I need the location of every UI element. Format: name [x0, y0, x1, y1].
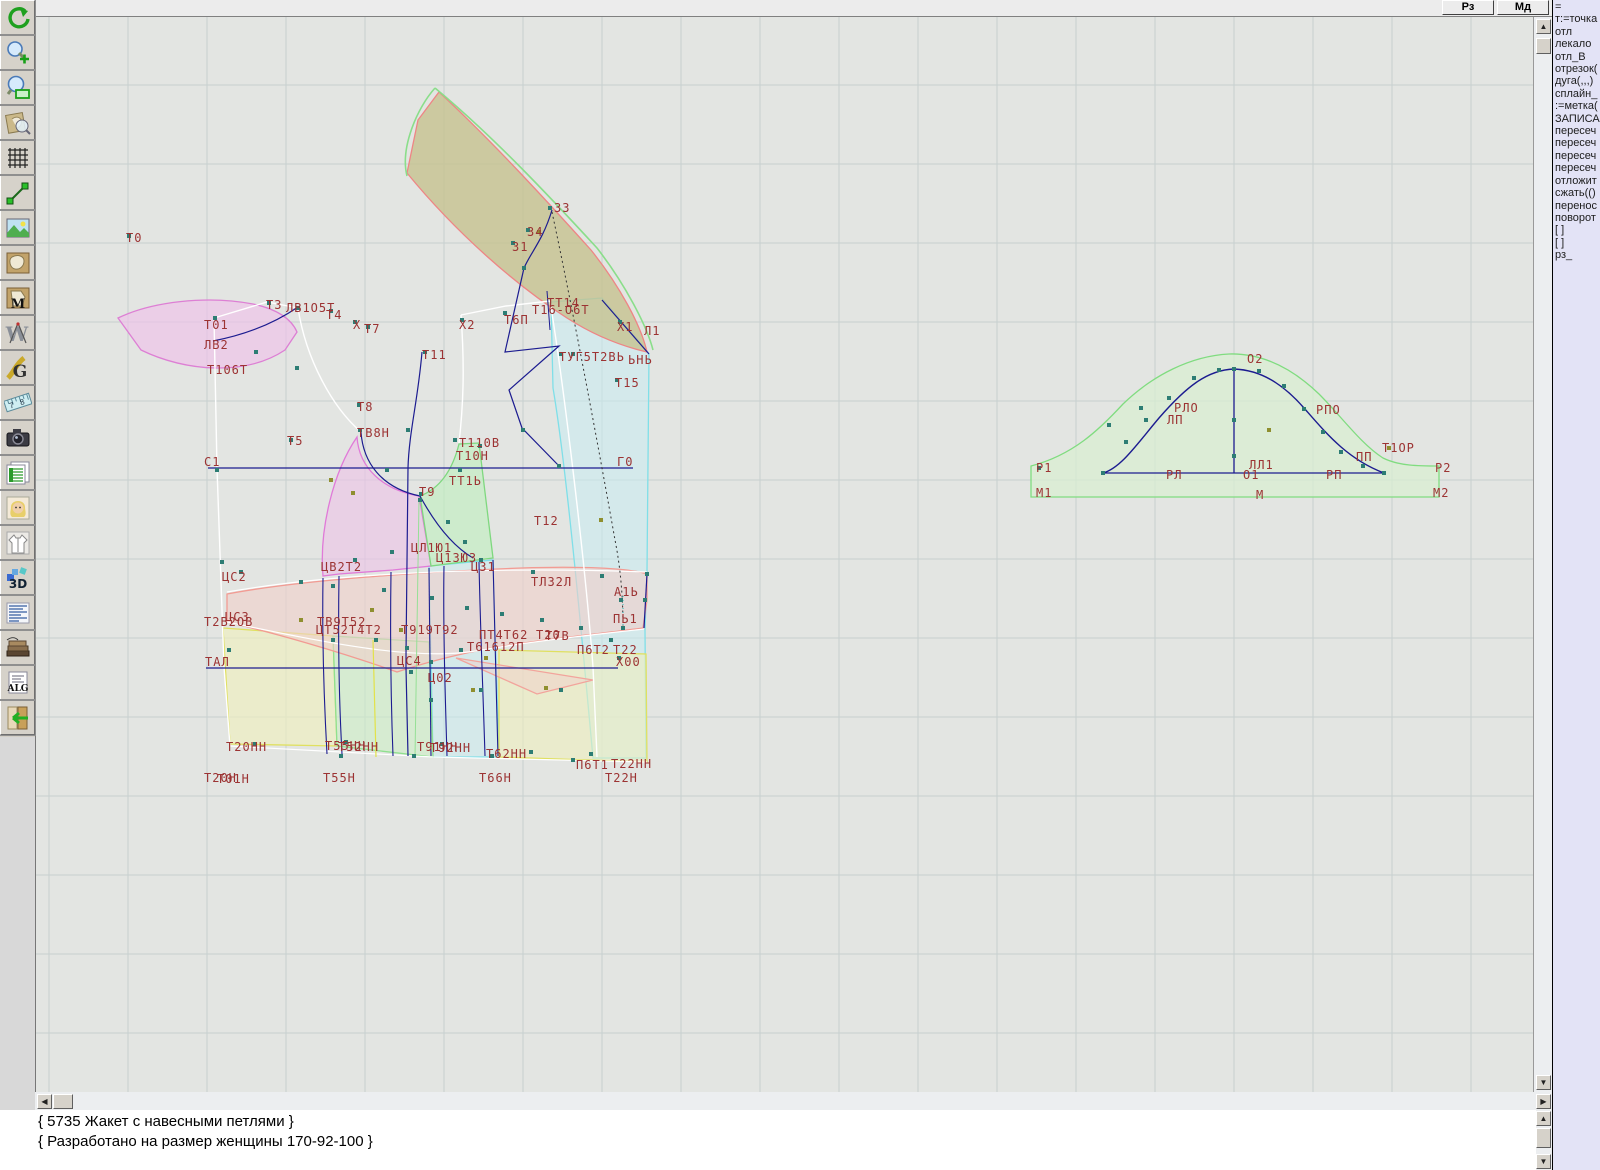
operator-list-item[interactable]: отложит: [1555, 175, 1600, 187]
point-label-РПО[interactable]: РПО: [1316, 403, 1341, 417]
olive-point-marker[interactable]: [299, 618, 303, 622]
operator-list-item[interactable]: перенос: [1555, 200, 1600, 212]
olive-point-marker[interactable]: [599, 518, 603, 522]
teal-point-marker[interactable]: [1361, 464, 1365, 468]
point-label-33[interactable]: 33: [554, 201, 570, 215]
toolbar-spacer: [0, 737, 35, 1170]
teal-point-marker[interactable]: [1257, 369, 1261, 373]
point-label-РП[interactable]: РП: [1326, 468, 1342, 482]
point-label-ЛВ2[interactable]: ЛВ2: [204, 338, 229, 352]
teal-point-marker[interactable]: [339, 754, 343, 758]
compass-icon: W: [4, 319, 32, 347]
point-label-Х1[interactable]: Х1: [617, 320, 633, 334]
construction-line[interactable]: [298, 308, 361, 432]
teal-point-marker[interactable]: [390, 550, 394, 554]
operator-list-item[interactable]: пересеч: [1555, 125, 1600, 137]
teal-point-marker[interactable]: [220, 560, 224, 564]
point-label-Р1[interactable]: Р1: [1036, 461, 1052, 475]
point-label-Т6П[interactable]: Т6П: [504, 313, 529, 327]
teal-point-marker[interactable]: [579, 626, 583, 630]
teal-point-marker[interactable]: [500, 612, 504, 616]
toolbar-button-portrait[interactable]: [0, 490, 35, 525]
drawing-canvas[interactable]: Т0Т01ЛВ2Т106ТТ3ЛВ1О5ТТ4ХТ7Т5Т11Х2Т6ПТТ14…: [35, 17, 1533, 1092]
program-scroll-thumb[interactable]: [1536, 1128, 1551, 1148]
point-label-Т1ОР[interactable]: Т1ОР: [1382, 441, 1415, 455]
teal-point-marker[interactable]: [557, 464, 561, 468]
operator-list-item[interactable]: [ ]: [1555, 224, 1600, 236]
toolbar-button-pattern-m[interactable]: M: [0, 280, 35, 315]
teal-point-marker[interactable]: [1139, 406, 1143, 410]
olive-point-marker[interactable]: [351, 491, 355, 495]
teal-point-marker[interactable]: [331, 584, 335, 588]
teal-point-marker[interactable]: [385, 468, 389, 472]
teal-point-marker[interactable]: [1321, 430, 1325, 434]
operator-list-panel[interactable]: =т:=точкаотллекалоотл_Вотрезок(дуга(,,,)…: [1552, 0, 1600, 1170]
toolbar-button-undo[interactable]: [0, 0, 35, 35]
operator-list-item[interactable]: рз_: [1555, 249, 1600, 261]
portrait-icon: [4, 494, 32, 522]
olive-point-marker[interactable]: [1267, 428, 1271, 432]
program-line-2[interactable]: { Разработано на размер женщины 170-92-1…: [38, 1132, 1536, 1152]
point-label-ТЛ32Л[interactable]: ТЛ32Л: [531, 575, 572, 589]
point-label-Х00[interactable]: Х00: [616, 655, 641, 669]
olive-point-marker[interactable]: [484, 656, 488, 660]
olive-point-marker[interactable]: [329, 478, 333, 482]
point-label-М1[interactable]: М1: [1036, 486, 1052, 500]
top-strip: Рз Мд: [35, 0, 1552, 17]
operator-list-item[interactable]: пересеч: [1555, 150, 1600, 162]
toolbar-button-3d[interactable]: 3D: [0, 560, 35, 595]
point-label-Т5[interactable]: Т5: [287, 434, 303, 448]
scroll-down-icon[interactable]: ▼: [1536, 1075, 1551, 1090]
toolbar-button-table[interactable]: [0, 455, 35, 490]
point-label-ЛП[interactable]: ЛП: [1167, 413, 1183, 427]
teal-point-marker[interactable]: [382, 588, 386, 592]
teal-point-marker[interactable]: [589, 752, 593, 756]
operator-list-item[interactable]: пересеч: [1555, 162, 1600, 174]
pattern-cad-window: { "topbar": { "buttons": [ { "label": "Р…: [0, 0, 1600, 1170]
construction-line[interactable]: [459, 315, 463, 443]
toolbar-button-camera[interactable]: [0, 420, 35, 455]
teal-point-marker[interactable]: [559, 688, 563, 692]
operator-list-item[interactable]: дуга(,,,): [1555, 75, 1600, 87]
teal-point-marker[interactable]: [479, 688, 483, 692]
operator-list-item[interactable]: [ ]: [1555, 237, 1600, 249]
canvas-horizontal-scrollbar[interactable]: ◀ ▶: [35, 1092, 1552, 1110]
operator-list-item[interactable]: отрезок(: [1555, 63, 1600, 75]
grid-lines: [36, 17, 1533, 1092]
teal-point-marker[interactable]: [531, 570, 535, 574]
books-icon: [4, 634, 32, 662]
teal-point-marker[interactable]: [1232, 454, 1236, 458]
text-block-icon: [4, 599, 32, 627]
teal-point-marker[interactable]: [540, 618, 544, 622]
teal-point-marker[interactable]: [643, 598, 647, 602]
point-label-С1[interactable]: С1: [204, 455, 220, 469]
point-label-Т16-О6Т[interactable]: Т16-О6Т: [532, 303, 590, 317]
teal-point-marker[interactable]: [1232, 367, 1236, 371]
piece-sleeve-cap-green[interactable]: [1031, 354, 1439, 497]
toolbar-button-zoom-in[interactable]: [0, 35, 35, 70]
teal-point-marker[interactable]: [1339, 450, 1343, 454]
point-label-ЦТ52Т4Т2[interactable]: ЦТ52Т4Т2: [316, 623, 382, 637]
point-label-Т9[interactable]: Т9: [419, 485, 435, 499]
teal-point-marker[interactable]: [227, 648, 231, 652]
teal-point-marker[interactable]: [621, 626, 625, 630]
teal-point-marker[interactable]: [1107, 423, 1111, 427]
teal-point-marker[interactable]: [429, 698, 433, 702]
teal-point-marker[interactable]: [1232, 418, 1236, 422]
point-label-Х[interactable]: Х: [353, 318, 361, 332]
teal-point-marker[interactable]: [254, 350, 258, 354]
point-label-Т52НН[interactable]: Т52НН: [338, 740, 379, 754]
point-label-Т4[interactable]: Т4: [326, 308, 342, 322]
teal-point-marker[interactable]: [446, 520, 450, 524]
point-label-ЦВ2Т2[interactable]: ЦВ2Т2: [321, 560, 362, 574]
toolbar-button-pattern[interactable]: [0, 245, 35, 280]
point-label-ТТ1Ь[interactable]: ТТ1Ь: [449, 474, 482, 488]
undo-icon: [4, 4, 32, 32]
point-label-Т01[interactable]: Т01: [204, 318, 229, 332]
svg-text:G: G: [12, 362, 27, 382]
program-line-1[interactable]: { 5735 Жакет с навесными петлями }: [38, 1112, 1536, 1132]
teal-point-marker[interactable]: [406, 428, 410, 432]
grid-icon: [4, 144, 32, 172]
scroll-down-icon[interactable]: ▼: [1536, 1154, 1551, 1169]
point-label-Т2В2ОВ[interactable]: Т2В2ОВ: [204, 615, 253, 629]
operator-list-item[interactable]: т:=точка: [1555, 13, 1600, 25]
toolbar-button-garment[interactable]: [0, 525, 35, 560]
point-label-Т66Н[interactable]: Т66Н: [479, 771, 512, 785]
camera-icon: [4, 424, 32, 452]
point-label-О1[interactable]: О1: [1243, 468, 1259, 482]
teal-point-marker[interactable]: [430, 596, 434, 600]
toolbar-button-ruler[interactable]: 87: [0, 385, 35, 420]
point-label-О2[interactable]: О2: [1247, 352, 1263, 366]
toolbar-button-segment[interactable]: [0, 175, 35, 210]
point-label-Т62НН[interactable]: Т62НН: [486, 747, 527, 761]
teal-point-marker[interactable]: [1302, 407, 1306, 411]
teal-point-marker[interactable]: [453, 438, 457, 442]
point-label-РЛ[interactable]: РЛ: [1166, 468, 1182, 482]
toolbar-button-text-block[interactable]: [0, 595, 35, 630]
program-text-area[interactable]: { 5735 Жакет с навесными петлями } { Раз…: [0, 1110, 1536, 1170]
toolbar: MWG873DALG: [0, 0, 35, 737]
point-label-Т106Т[interactable]: Т106Т: [207, 363, 248, 377]
image-icon: [4, 214, 32, 242]
teal-point-marker[interactable]: [529, 750, 533, 754]
teal-point-marker[interactable]: [295, 366, 299, 370]
canvas-vertical-scrollbar[interactable]: ▲ ▼: [1533, 17, 1552, 1092]
point-label-Ц02[interactable]: Ц02: [428, 671, 453, 685]
garment-icon: [4, 529, 32, 557]
point-label-ПП[interactable]: ПП: [1356, 450, 1372, 464]
point-label-Р2[interactable]: Р2: [1435, 461, 1451, 475]
teal-point-marker[interactable]: [459, 648, 463, 652]
pattern-m-icon: M: [4, 284, 32, 312]
alg-icon: ALG: [4, 669, 32, 697]
point-label-31[interactable]: 31: [512, 240, 528, 254]
point-label-Х2[interactable]: Х2: [459, 318, 475, 332]
pattern-drawing: [36, 17, 1533, 1092]
teal-point-marker[interactable]: [412, 754, 416, 758]
toolbar-button-books[interactable]: [0, 630, 35, 665]
operator-list-item[interactable]: поворот: [1555, 212, 1600, 224]
teal-point-marker[interactable]: [609, 638, 613, 642]
operator-list-item[interactable]: сплайн_: [1555, 88, 1600, 100]
md-button[interactable]: Мд: [1497, 0, 1549, 15]
point-label-Т55Н[interactable]: Т55Н: [323, 771, 356, 785]
zoom-in-icon: [4, 39, 32, 67]
point-label-Т61612П[interactable]: Т61612П: [467, 640, 525, 654]
point-label-ТВ8Н[interactable]: ТВ8Н: [357, 426, 390, 440]
point-label-Т92НН[interactable]: Т92НН: [430, 741, 471, 755]
exit-icon: [4, 704, 32, 732]
point-label-Т22НН[interactable]: Т22НН: [611, 757, 652, 771]
point-label-Ц31[interactable]: Ц31: [471, 560, 496, 574]
scroll-left-icon[interactable]: ◀: [37, 1094, 52, 1109]
point-label-Т3[interactable]: Т3: [266, 298, 282, 312]
teal-point-marker[interactable]: [331, 638, 335, 642]
toolbar-button-grid[interactable]: [0, 140, 35, 175]
program-scrollbar[interactable]: ▲ ▼: [1536, 1110, 1552, 1170]
pattern-icon: [4, 249, 32, 277]
ruler-icon: 87: [4, 389, 32, 417]
operator-list-item[interactable]: лекало: [1555, 38, 1600, 50]
teal-point-marker[interactable]: [299, 580, 303, 584]
teal-point-marker[interactable]: [1167, 396, 1171, 400]
teal-point-marker[interactable]: [571, 758, 575, 762]
teal-point-marker[interactable]: [1217, 368, 1221, 372]
scroll-up-icon[interactable]: ▲: [1536, 19, 1551, 34]
teal-point-marker[interactable]: [405, 646, 409, 650]
operator-list-item[interactable]: пересеч: [1555, 137, 1600, 149]
teal-point-marker[interactable]: [465, 606, 469, 610]
point-label-ЬНЬ[interactable]: ЬНЬ: [628, 353, 653, 367]
teal-point-marker[interactable]: [1382, 471, 1386, 475]
toolbar-button-alg[interactable]: ALG: [0, 665, 35, 700]
point-label-Т12[interactable]: Т12: [534, 514, 559, 528]
operator-list-item[interactable]: сжать((): [1555, 187, 1600, 199]
toolbar-button-compass[interactable]: W: [0, 315, 35, 350]
segment-icon: [4, 179, 32, 207]
point-label-П6Т2[interactable]: П6Т2: [577, 643, 610, 657]
point-label-М[interactable]: М: [1256, 488, 1264, 502]
toolbar-button-exit[interactable]: [0, 700, 35, 735]
teal-point-marker[interactable]: [521, 428, 525, 432]
toolbar-button-preview-zoom[interactable]: [0, 105, 35, 140]
olive-point-marker[interactable]: [544, 686, 548, 690]
operator-list-item[interactable]: =: [1555, 1, 1600, 13]
teal-point-marker[interactable]: [429, 660, 433, 664]
point-label-Т7В[interactable]: Т7В: [545, 629, 570, 643]
toolbar-button-g-doc[interactable]: G: [0, 350, 35, 385]
toolbar-button-zoom-window[interactable]: [0, 70, 35, 105]
teal-point-marker[interactable]: [645, 572, 649, 576]
point-label-П6Т1[interactable]: П6Т1: [576, 758, 609, 772]
point-label-Т01Н[interactable]: Т01Н: [217, 772, 250, 786]
point-label-М2[interactable]: М2: [1433, 486, 1449, 500]
teal-point-marker[interactable]: [1144, 418, 1148, 422]
svg-text:3D: 3D: [8, 577, 26, 591]
teal-point-marker[interactable]: [600, 574, 604, 578]
point-label-ТУГ5Т2ВЬ[interactable]: ТУГ5Т2ВЬ: [559, 350, 625, 364]
teal-point-marker[interactable]: [1192, 376, 1196, 380]
3d-icon: 3D: [4, 564, 32, 592]
teal-point-marker[interactable]: [548, 206, 552, 210]
point-label-Т7[interactable]: Т7: [364, 322, 380, 336]
teal-point-marker[interactable]: [522, 266, 526, 270]
point-label-Т919Т92[interactable]: Т919Т92: [401, 623, 459, 637]
point-label-Т0[interactable]: Т0: [126, 231, 142, 245]
point-label-Т22Н[interactable]: Т22Н: [605, 771, 638, 785]
point-label-ЦС2[interactable]: ЦС2: [222, 570, 247, 584]
point-label-Т15[interactable]: Т15: [615, 376, 640, 390]
teal-point-marker[interactable]: [374, 638, 378, 642]
point-label-ПЬ1[interactable]: ПЬ1: [613, 612, 638, 626]
point-label-Т20НН[interactable]: Т20НН: [226, 740, 267, 754]
point-label-Т8[interactable]: Т8: [357, 400, 373, 414]
teal-point-marker[interactable]: [1101, 471, 1105, 475]
horizontal-scroll-thumb[interactable]: [53, 1094, 73, 1109]
teal-point-marker[interactable]: [1124, 440, 1128, 444]
teal-point-marker[interactable]: [1282, 384, 1286, 388]
toolbar-button-image[interactable]: [0, 210, 35, 245]
piece-side-panel-magenta[interactable]: [322, 437, 431, 576]
scroll-right-icon[interactable]: ▶: [1536, 1094, 1551, 1109]
operator-list-item[interactable]: отл: [1555, 26, 1600, 38]
point-label-Г0[interactable]: Г0: [617, 455, 633, 469]
teal-point-marker[interactable]: [463, 540, 467, 544]
g-doc-icon: G: [4, 354, 32, 382]
zoom-window-icon: [4, 74, 32, 102]
point-label-Т110В[interactable]: Т110В: [459, 436, 500, 450]
operator-list-item[interactable]: :=метка(: [1555, 100, 1600, 112]
olive-point-marker[interactable]: [471, 688, 475, 692]
svg-text:M: M: [10, 297, 24, 312]
preview-zoom-icon: [4, 109, 32, 137]
svg-text:ALG: ALG: [6, 684, 28, 694]
olive-point-marker[interactable]: [370, 608, 374, 612]
rz-button[interactable]: Рз: [1442, 0, 1494, 15]
point-label-ЦС4[interactable]: ЦС4: [397, 654, 422, 668]
teal-point-marker[interactable]: [409, 670, 413, 674]
teal-point-marker[interactable]: [458, 468, 462, 472]
point-label-34[interactable]: 34: [527, 225, 543, 239]
point-label-Т10Н[interactable]: Т10Н: [456, 449, 489, 463]
table-icon: [4, 459, 32, 487]
point-label-А1Ь[interactable]: А1Ь: [614, 585, 639, 599]
point-label-ТАЛ[interactable]: ТАЛ: [205, 655, 230, 669]
operator-list-item[interactable]: отл_В: [1555, 51, 1600, 63]
scroll-up-icon[interactable]: ▲: [1536, 1111, 1551, 1126]
point-label-Л1[interactable]: Л1: [644, 324, 660, 338]
operator-list-item[interactable]: ЗАПИСА: [1555, 113, 1600, 125]
vertical-scroll-thumb[interactable]: [1536, 38, 1551, 54]
point-label-Т11[interactable]: Т11: [422, 348, 447, 362]
